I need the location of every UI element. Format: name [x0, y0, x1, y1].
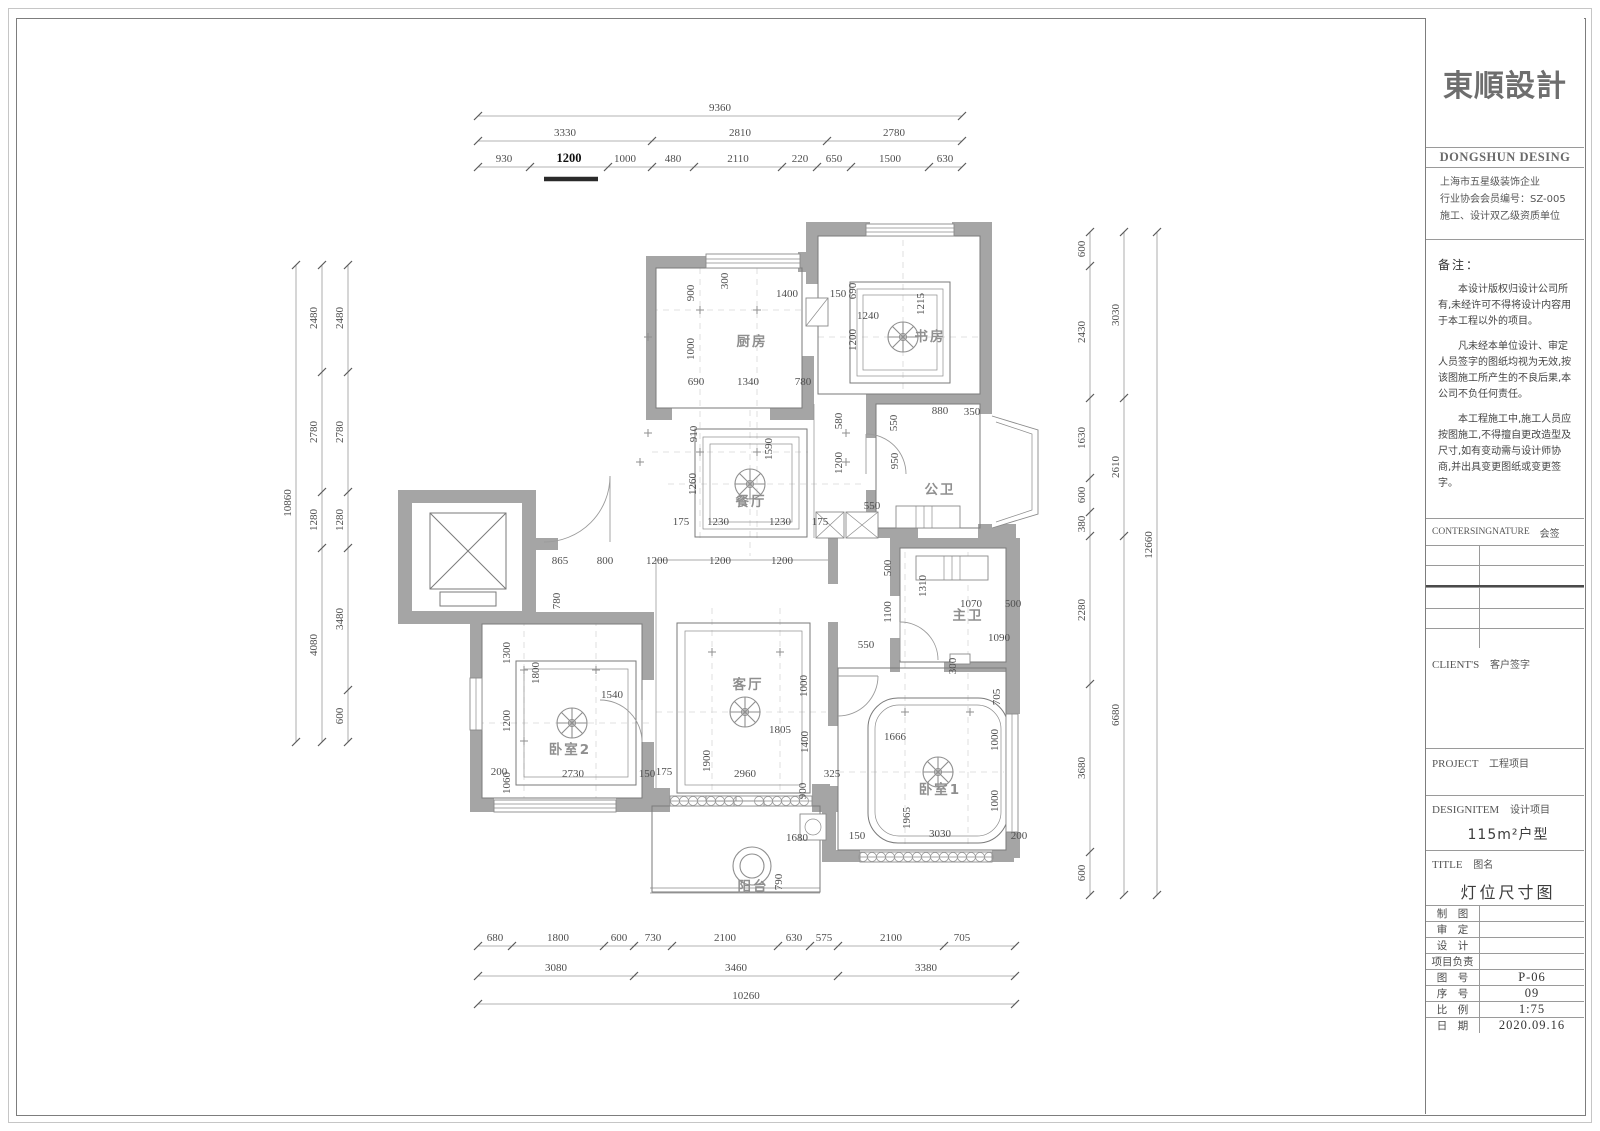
dim-label: 175 [812, 516, 829, 528]
dim-label: 500 [882, 559, 894, 576]
notes-title: 备注： [1438, 256, 1576, 273]
dim-label: 2280 [1076, 599, 1088, 622]
room-label-study: 书房 [915, 328, 946, 345]
project-label-en: PROJECT [1432, 758, 1478, 770]
dim-label: 1200 [646, 555, 669, 567]
room-label-master-bath: 主卫 [953, 607, 984, 624]
title-block: 東順設計 DONGSHUN DESING 上海市五星级装饰企业 行业协会会员编号… [1425, 18, 1584, 1114]
dim-label: 1280 [334, 509, 346, 532]
dim-label: 3380 [915, 962, 938, 974]
dim-label: 1540 [601, 689, 624, 701]
clients-section: CLIENT'S 客户签字 [1426, 648, 1584, 748]
signature-row [1426, 545, 1584, 565]
project-section: PROJECT 工程项目 [1426, 748, 1584, 795]
room-label-kitchen: 厨房 [737, 333, 768, 350]
drawing-title-section: TITLE 图名 灯位尺寸图 [1426, 850, 1584, 905]
dim-label: 10260 [732, 990, 760, 1002]
dim-label: 3680 [1076, 757, 1088, 780]
dim-label: 1500 [879, 153, 902, 165]
dim-label: 150 [849, 830, 866, 842]
dim-label: 1340 [737, 376, 760, 388]
dim-label: 1000 [685, 338, 697, 361]
dim-label: 1280 [308, 509, 320, 532]
dim-label: 3460 [725, 962, 748, 974]
dim-label: 175 [656, 766, 673, 778]
drawing-title-label-cn: 图名 [1473, 860, 1493, 871]
dim-label: 690 [847, 282, 859, 299]
dim-label: 550 [888, 414, 900, 431]
light-point-marker [644, 429, 652, 437]
dim-label: 2480 [308, 307, 320, 330]
dim-label: 3480 [334, 608, 346, 631]
dim-label: 650 [826, 153, 843, 165]
dim-label: 1200 [501, 710, 513, 733]
signature-row [1426, 565, 1584, 587]
company-credentials: 上海市五星级装饰企业 行业协会会员编号：SZ-005 施工、设计双乙级资质单位 [1426, 168, 1584, 240]
dim-label: 2780 [883, 127, 906, 139]
note-paragraph: 本工程施工中,施工人员应按图施工,不得擅自更改造型及尺寸,如有变动需与设计师协商… [1438, 412, 1574, 492]
dim-label: 1630 [1076, 427, 1088, 450]
design-item-section: DESIGNITEM 设计项目 115m²户型 [1426, 795, 1584, 850]
vanity [896, 506, 960, 528]
dim-label: 575 [816, 932, 833, 944]
dim-label: 630 [937, 153, 954, 165]
dim-label: 1060 [501, 772, 513, 795]
dim-label: 220 [792, 153, 809, 165]
dim-label: 1310 [917, 575, 929, 598]
dim-label: 3030 [1110, 304, 1122, 327]
company-logo-en: DONGSHUN DESING [1426, 147, 1584, 168]
dim-label: 1200 [833, 452, 845, 475]
light-point-marker [708, 648, 716, 656]
drawing-title-label-en: TITLE [1432, 859, 1463, 871]
dim-label: 1260 [687, 473, 699, 496]
dim-label: 600 [334, 707, 346, 724]
dim-label: 2430 [1076, 321, 1088, 344]
dim-label: 600 [611, 932, 628, 944]
dim-label: 780 [551, 592, 563, 609]
dim-label: 2110 [727, 153, 749, 165]
dim-label: 4080 [308, 634, 320, 657]
dim-label: 380 [1076, 515, 1088, 532]
room-label-public-bath: 公卫 [925, 482, 956, 498]
light-point-marker [636, 458, 644, 466]
light-point-marker [696, 306, 704, 314]
info-row-drafter: 制 图 [1426, 905, 1584, 921]
dim-label: 2780 [308, 421, 320, 444]
countersignature-table [1426, 545, 1584, 648]
room-label-dining: 餐厅 [735, 493, 767, 510]
light-point-marker [966, 708, 974, 716]
dim-label: 2100 [714, 932, 737, 944]
dim-label: 2730 [562, 768, 585, 780]
dim-label: 780 [795, 376, 812, 388]
dim-label: 2480 [334, 307, 346, 330]
dim-label: 1100 [882, 601, 894, 623]
note-paragraph: 凡未经本单位设计、审定人员签字的图纸均视为无效,按该图施工所产生的不良后果,本公… [1438, 339, 1574, 403]
room-label-balcony: 阳台 [738, 878, 769, 895]
floor-plan-drawing: 9360333028102780930120010004802110220650… [0, 0, 1600, 1131]
dim-label: 175 [673, 516, 690, 528]
bay-window [992, 416, 1038, 528]
dim-label: 1900 [701, 750, 713, 773]
dim-label: 1000 [614, 153, 637, 165]
dim-label: 580 [833, 412, 845, 429]
company-line: 上海市五星级装饰企业 [1440, 174, 1578, 191]
dim-label: 3080 [545, 962, 568, 974]
dim-label: 1965 [901, 807, 913, 830]
dim-label: 9360 [709, 102, 732, 114]
dim-label: 900 [685, 284, 697, 301]
dim-label: 690 [688, 376, 705, 388]
dim-label: 910 [688, 425, 700, 442]
dim-label: 10860 [282, 489, 294, 517]
info-row-serial-number: 序 号 09 [1426, 985, 1584, 1001]
light-point-marker [520, 666, 528, 674]
dim-label: 1590 [763, 438, 775, 461]
dim-label: 1800 [547, 932, 570, 944]
dim-label: 1200 [847, 329, 859, 352]
light-point-marker [592, 666, 600, 674]
dim-label: 300 [947, 657, 959, 674]
dim-label: 6680 [1110, 704, 1122, 727]
dim-label: 1200 [709, 555, 732, 567]
dim-label: 3330 [554, 127, 577, 139]
dim-label: 1000 [989, 729, 1001, 752]
dim-label: 550 [858, 639, 875, 651]
elevator-shaft [398, 490, 536, 624]
light-point-marker [901, 708, 909, 716]
dim-label: 800 [597, 555, 614, 567]
countersignature-label-en: CONTERSINGNATURE [1432, 527, 1530, 537]
dim-label: 1400 [799, 731, 811, 754]
dim-label: 500 [1005, 598, 1022, 610]
dim-label: 2960 [734, 768, 757, 780]
countersignature-label-cn: 会签 [1540, 525, 1560, 540]
info-table: 制 图 审 定 设 计 项目负责 图 号 P-06 序 号 09 比 例 1:7… [1426, 905, 1584, 1033]
dim-label: 350 [964, 406, 981, 418]
info-row-scale: 比 例 1:75 [1426, 1001, 1584, 1017]
design-item-value: 115m²户型 [1432, 824, 1584, 844]
dim-label: 300 [719, 272, 731, 289]
dim-label: 705 [991, 688, 1003, 705]
note-paragraph: 本设计版权归设计公司所有,未经许可不得将设计内容用于本工程以外的项目。 [1438, 282, 1574, 330]
info-row-designer: 设 计 [1426, 937, 1584, 953]
dim-label: 1200 [557, 151, 582, 165]
dim-label: 600 [1076, 864, 1088, 881]
dim-label: 600 [1076, 486, 1088, 503]
dim-label: 1230 [769, 516, 792, 528]
dim-label: 1666 [884, 731, 907, 743]
countersignature-header: CONTERSINGNATURE 会签 [1426, 518, 1584, 545]
info-row-project-lead: 项目负责 [1426, 953, 1584, 969]
dim-label: 2100 [880, 932, 903, 944]
dim-label: 1230 [707, 516, 730, 528]
dim-label: 550 [864, 500, 881, 512]
dim-label: 790 [773, 873, 785, 890]
dim-label: 2810 [729, 127, 752, 139]
dim-label: 150 [830, 288, 847, 300]
ceiling-fan-icon [730, 697, 760, 727]
signature-row [1426, 587, 1584, 607]
dim-label: 630 [786, 932, 803, 944]
light-point-marker [753, 306, 761, 314]
dim-label: 2610 [1110, 456, 1122, 479]
dim-label: 1800 [530, 662, 542, 685]
dim-label: 865 [552, 555, 569, 567]
dim-label: 150 [639, 768, 656, 780]
dim-label: 1300 [501, 642, 513, 665]
room-label-bedroom1: 卧室1 [919, 781, 961, 798]
light-point-marker [753, 448, 761, 456]
dim-label: 12660 [1143, 531, 1155, 559]
signature-row [1426, 608, 1584, 628]
dim-label: 950 [889, 452, 901, 469]
info-row-date: 日 期 2020.09.16 [1426, 1017, 1584, 1033]
project-label-cn: 工程项目 [1489, 759, 1529, 770]
dim-label: 325 [824, 768, 841, 780]
dim-label: 1200 [771, 555, 794, 567]
info-row-drawing-number: 图 号 P-06 [1426, 969, 1584, 985]
room-label-bedroom2: 卧室2 [549, 741, 591, 758]
design-item-label-en: DESIGNITEM [1432, 804, 1499, 816]
dim-label: 705 [954, 932, 971, 944]
info-row-approver: 审 定 [1426, 921, 1584, 937]
dim-label: 600 [1076, 240, 1088, 257]
ceiling-fan-icon [888, 322, 918, 352]
dim-label: 480 [665, 153, 682, 165]
clients-label-en: CLIENT'S [1432, 659, 1479, 671]
dim-label: 1090 [988, 632, 1011, 644]
light-point-marker [520, 737, 528, 745]
dim-label: 1240 [857, 310, 880, 322]
dim-label: 680 [487, 932, 504, 944]
dim-label: 930 [496, 153, 513, 165]
dim-label: 2780 [334, 421, 346, 444]
design-item-label-cn: 设计项目 [1510, 805, 1550, 816]
company-line: 施工、设计双乙级资质单位 [1440, 208, 1578, 225]
dim-label: 1000 [989, 790, 1001, 813]
ceiling-fan-icon [557, 708, 587, 738]
dim-label: 730 [645, 932, 662, 944]
notes-section: 备注： 本设计版权归设计公司所有,未经许可不得将设计内容用于本工程以外的项目。 … [1426, 240, 1584, 518]
dim-label: 880 [932, 405, 949, 417]
clients-label-cn: 客户签字 [1490, 660, 1530, 671]
company-logo: 東順設計 [1426, 18, 1584, 147]
dim-label: 200 [1011, 830, 1028, 842]
dim-label: 1000 [798, 675, 810, 698]
drawing-page: 9360333028102780930120010004802110220650… [0, 0, 1600, 1131]
light-point-marker [776, 648, 784, 656]
signature-row [1426, 628, 1584, 648]
dim-label: 1680 [786, 832, 809, 844]
dim-label: 1400 [776, 288, 799, 300]
room-label-living: 客厅 [732, 676, 764, 693]
company-line: 行业协会会员编号：SZ-005 [1440, 191, 1578, 208]
dim-label: 3030 [929, 828, 952, 840]
dim-label: 1805 [769, 724, 792, 736]
drawing-title-value: 灯位尺寸图 [1432, 879, 1584, 903]
dim-label: 1215 [915, 293, 927, 316]
